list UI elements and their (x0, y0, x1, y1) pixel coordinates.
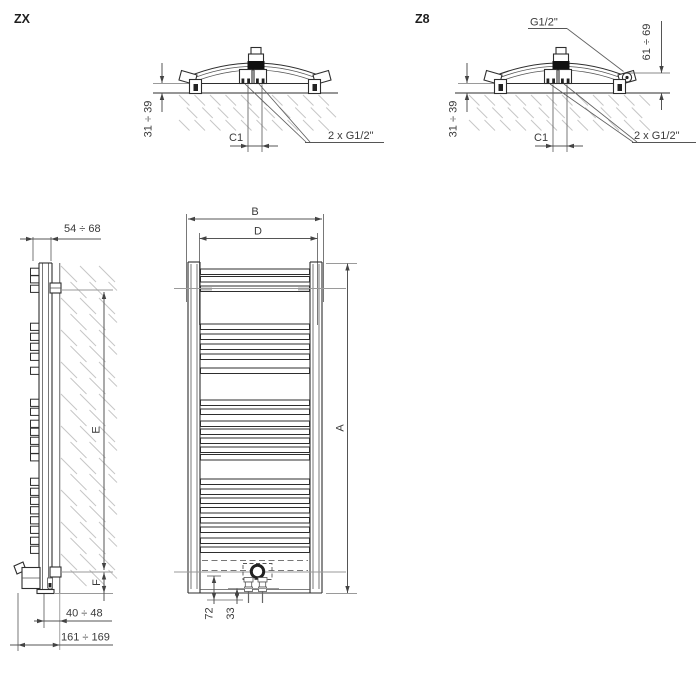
hatch-line (516, 95, 527, 106)
tube-end (31, 367, 40, 374)
arrow (311, 236, 318, 240)
side-tube-ends (31, 268, 40, 553)
hatch-line (264, 108, 275, 119)
front-rungs (201, 269, 310, 553)
hatch-line (477, 108, 488, 119)
hatch-line (80, 298, 96, 314)
hatch-line (90, 314, 106, 330)
hatch-line (539, 108, 550, 119)
z8-c1-label: C1 (534, 132, 548, 144)
zx-view-label: ZX (14, 12, 31, 26)
hatch-line (109, 570, 118, 579)
side-view: 54 ÷ 68 E F 40 ÷ 48 161 ÷ 169 (10, 223, 113, 651)
hatch-line (80, 266, 96, 282)
z8-view-label: Z8 (415, 12, 430, 26)
zx-wall-offset-label: 31 ÷ 39 (143, 101, 155, 138)
hatch-line (61, 458, 77, 474)
hatch-line (61, 522, 77, 538)
tube-end (31, 488, 40, 495)
hatch-line (469, 95, 480, 106)
hatch-line (109, 506, 118, 515)
rung (201, 421, 310, 427)
arrow (235, 593, 239, 600)
front-view: B D (174, 206, 357, 620)
rung (201, 538, 310, 544)
side-bar-bottom-cap (37, 590, 54, 594)
rung (201, 429, 310, 435)
hatch-line (80, 522, 96, 538)
zx-port (262, 79, 265, 84)
rung (201, 354, 310, 360)
rung (201, 447, 310, 453)
hatch-line (90, 442, 106, 458)
hatch-line (179, 95, 190, 106)
hatch-line (547, 120, 558, 131)
hatch-line (288, 95, 299, 106)
hatch-line (109, 346, 118, 355)
arrow (345, 586, 349, 593)
hatch-line (71, 314, 87, 330)
rung (201, 479, 310, 485)
hatch-line (640, 120, 651, 131)
hatch-line (90, 378, 106, 394)
hatch-line (303, 95, 314, 106)
a-label: A (335, 424, 347, 432)
hatch-line (109, 282, 118, 291)
zx-connections-label: 2 x G1/2" (328, 130, 374, 142)
valve-body (259, 582, 265, 587)
hatch-line (109, 442, 118, 451)
hatch-line (241, 120, 252, 131)
valve-nut-bottom (245, 587, 253, 592)
front-bracket-mark-left (201, 288, 212, 291)
radiator-dimension-drawing: ZX 31 ÷ 39 (0, 0, 700, 673)
front-valve-left (244, 578, 253, 604)
hatch-line (578, 120, 589, 131)
hatch-line (61, 298, 77, 314)
tube-end (31, 285, 40, 292)
hatch-line (80, 330, 96, 346)
hatch-line (195, 95, 206, 106)
hatch-line (531, 120, 542, 131)
valve-nut-bottom (259, 587, 267, 592)
arrow (26, 237, 33, 241)
hatch-line (624, 120, 635, 131)
side-bracket-bottom (50, 567, 61, 577)
front-plug-circle (251, 565, 263, 577)
zx-foot-right-hole (313, 84, 318, 91)
rung (201, 400, 310, 406)
hatch-line (616, 108, 627, 119)
arrow (160, 76, 164, 83)
arrow (212, 593, 216, 600)
hatch-line (99, 522, 115, 538)
hatch-line (80, 554, 96, 570)
arrow (659, 66, 663, 73)
tube-end (31, 437, 40, 444)
z8-g12-leader (567, 29, 624, 72)
b-label: B (251, 206, 258, 218)
z8-port (552, 79, 555, 84)
z8-side-offset-label: 61 ÷ 69 (641, 24, 653, 61)
z8-fitting-left (545, 70, 558, 84)
hatch-line (593, 95, 604, 106)
z8-port (567, 79, 570, 84)
hatch-line (61, 362, 77, 378)
hatch-line (195, 120, 206, 131)
hatch-line (99, 298, 115, 314)
hatch-line (90, 410, 106, 426)
hatch-line (531, 95, 542, 106)
hatch-line (516, 120, 527, 131)
hatch-line (71, 378, 87, 394)
tube-end (31, 507, 40, 514)
z8-port (547, 79, 550, 84)
rung (201, 344, 310, 350)
hatch-line (326, 108, 336, 118)
hatch-line (593, 120, 604, 131)
hatch-line (99, 554, 115, 570)
hatch-line (80, 490, 96, 506)
rung (201, 269, 310, 275)
rung (201, 455, 310, 461)
depth-label: 54 ÷ 68 (64, 223, 101, 235)
hatch-line (226, 95, 237, 106)
rung (201, 489, 310, 495)
hatch-line (99, 394, 115, 410)
hatch-line (311, 108, 322, 119)
tube-end (31, 546, 40, 553)
hatch-line (210, 120, 221, 131)
arrow (200, 236, 207, 240)
tube-end (31, 446, 40, 453)
rung (201, 527, 310, 533)
valve-nut-top (258, 578, 267, 583)
hatch-line (523, 108, 534, 119)
arrow (241, 144, 248, 148)
zx-vent-base (249, 54, 264, 62)
zx-port (242, 79, 245, 84)
hatch-line (319, 120, 330, 131)
hatch-line (71, 506, 87, 522)
z8-fitting-right (559, 70, 572, 84)
front-bracket-mark-right (298, 288, 309, 291)
z8-center-block (553, 61, 570, 70)
rung (201, 324, 310, 330)
tube-end (31, 454, 40, 461)
tube-end (31, 333, 40, 340)
hatch-line (90, 346, 106, 362)
hatch-line (90, 538, 106, 554)
hatch-line (99, 458, 115, 474)
hatch-line (469, 120, 480, 131)
tube-end (31, 399, 40, 406)
dim72-label: 72 (204, 607, 216, 619)
hatch-line (609, 95, 620, 106)
zx-foot-left-hole (194, 84, 199, 91)
tube-end (31, 343, 40, 350)
hatch-line (272, 120, 283, 131)
hatch-line (500, 120, 511, 131)
hatch-line (71, 346, 87, 362)
z8-side-connector-dot (625, 76, 628, 79)
arrow (102, 563, 106, 570)
arrow (102, 586, 106, 593)
e-label: E (91, 426, 103, 433)
arrow (212, 576, 216, 583)
z8-side-connection-label: G1/2" (530, 17, 558, 29)
rung (201, 438, 310, 444)
zx-port (256, 79, 259, 84)
hatch-line (61, 266, 77, 282)
arrow (51, 237, 58, 241)
valve-nut-top (244, 578, 253, 583)
z8-foot-right-hole (618, 84, 623, 91)
hatch-line (226, 120, 237, 131)
hatch-line (187, 108, 198, 119)
zx-port (247, 79, 250, 84)
hatch-line (179, 120, 190, 131)
hatch-line (547, 95, 558, 106)
arrow (102, 573, 106, 580)
hatch-line (640, 95, 651, 106)
tube-end (31, 420, 40, 427)
hatch-line (99, 362, 115, 378)
hatch-line (303, 120, 314, 131)
tube-end (31, 268, 40, 275)
hatch-line (570, 108, 581, 119)
tube-end (31, 428, 40, 435)
hatch-line (233, 108, 244, 119)
zx-top-view: ZX 31 ÷ 39 (14, 12, 384, 152)
wall-hatching (61, 95, 650, 586)
hatch-line (99, 490, 115, 506)
z8-connections-label: 2 x G1/2" (634, 130, 680, 142)
arrow (567, 144, 574, 148)
hatch-line (80, 458, 96, 474)
hatch-line (99, 330, 115, 346)
tube-end (31, 537, 40, 544)
rung (201, 334, 310, 340)
tube-end (31, 526, 40, 533)
rung (201, 518, 310, 524)
tube-end (31, 323, 40, 330)
hatch-line (249, 108, 260, 119)
arrow (315, 217, 322, 221)
hatch-line (202, 108, 213, 119)
tube-end (31, 408, 40, 415)
tube-end (31, 497, 40, 504)
technical-drawing-canvas: ZX 31 ÷ 39 (0, 0, 700, 673)
hatch-line (500, 95, 511, 106)
tube-end (31, 353, 40, 360)
arrow (465, 93, 469, 100)
hatch-line (109, 314, 118, 323)
hatch-line (80, 394, 96, 410)
hatch-line (210, 95, 221, 106)
arrow (37, 619, 44, 623)
zx-fitting-right (254, 70, 267, 84)
rung (201, 277, 310, 283)
hatch-line (71, 474, 87, 490)
hatch-line (109, 474, 118, 483)
hatch-line (90, 506, 106, 522)
tube-end (31, 478, 40, 485)
valve-body (245, 582, 251, 587)
tube-end (31, 276, 40, 283)
total-depth-label: 161 ÷ 169 (61, 632, 110, 644)
hatch-line (632, 108, 643, 119)
arrow (345, 264, 349, 271)
hatch-line (554, 108, 565, 119)
f-label: F (91, 579, 103, 586)
z8-port (561, 79, 564, 84)
hatch-line (99, 266, 115, 282)
hatch-line (624, 95, 635, 106)
d-label: D (254, 226, 262, 238)
arrow (465, 76, 469, 83)
side-valve-port-hole (49, 583, 52, 587)
zx-center-block (248, 61, 265, 70)
arrow (546, 144, 553, 148)
z8-vent-base (554, 54, 569, 62)
zx-fitting-left (240, 70, 253, 84)
arrow (262, 144, 269, 148)
rung (201, 547, 310, 553)
rung (201, 508, 310, 514)
z8-foot-left-hole (499, 84, 504, 91)
rung (201, 498, 310, 504)
hatch-line (295, 108, 306, 119)
hatch-line (218, 108, 229, 119)
hatch-line (90, 474, 106, 490)
hatch-line (319, 95, 330, 106)
hatch-line (601, 108, 612, 119)
zx-c1-label: C1 (229, 132, 243, 144)
front-valve-right (258, 578, 267, 604)
hatch-line (492, 108, 503, 119)
arrow (188, 217, 195, 221)
hatch-line (61, 394, 77, 410)
dim33-label: 33 (225, 607, 237, 619)
hatch-line (61, 490, 77, 506)
rung (201, 409, 310, 415)
hatch-line (61, 330, 77, 346)
arrow (160, 93, 164, 100)
z8-wall-offset-label: 31 ÷ 39 (448, 101, 460, 138)
arrow (659, 93, 663, 100)
hatch-line (61, 554, 77, 570)
hatch-line (80, 362, 96, 378)
hatch-line (485, 95, 496, 106)
hatch-line (71, 410, 87, 426)
tube-end (31, 517, 40, 524)
arrow (53, 643, 60, 647)
z8-top-view: Z8 G1/2" 61 ÷ 69 (415, 12, 696, 152)
rung (201, 368, 310, 374)
hatch-line (109, 410, 118, 419)
wall-to-axis-label: 40 ÷ 48 (66, 608, 103, 620)
hatch-line (71, 442, 87, 458)
hatch-line (61, 426, 77, 442)
hatch-line (485, 120, 496, 131)
hatch-line (109, 378, 118, 387)
hatch-line (241, 95, 252, 106)
hatch-line (508, 108, 519, 119)
hatch-line (71, 538, 87, 554)
hatch-line (109, 538, 118, 547)
arrow (18, 643, 25, 647)
